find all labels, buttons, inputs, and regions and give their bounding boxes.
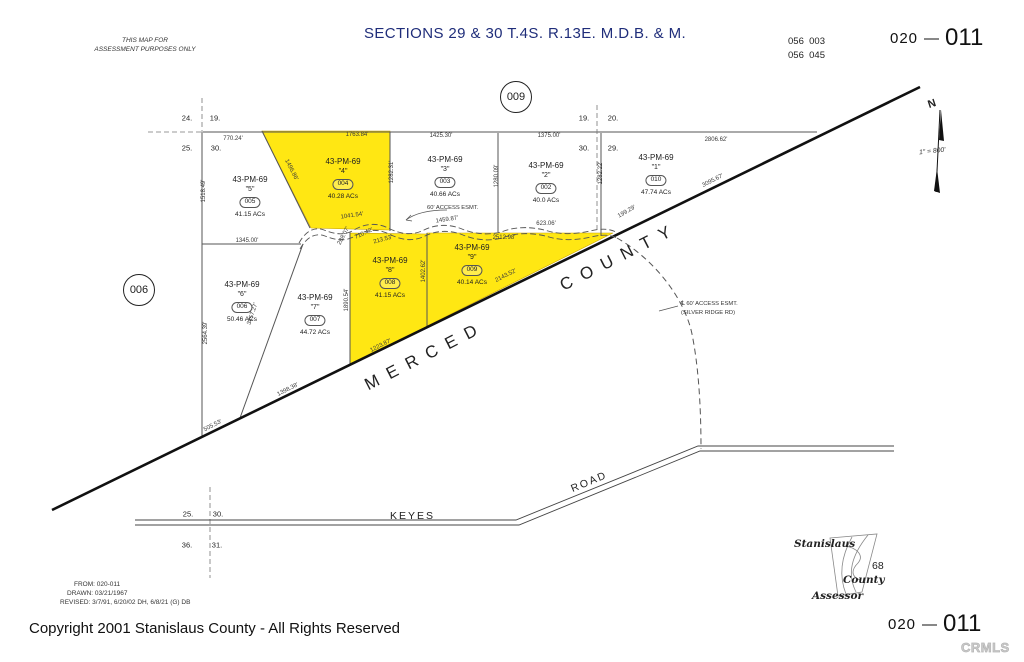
dimension-label: 623.06' <box>536 221 556 227</box>
parcel-acreage: 40.14 ACs <box>454 278 489 288</box>
parcel-name: "8" <box>372 266 407 276</box>
parcel-number-badge: 004 <box>333 179 354 190</box>
section-corner-label: 31. <box>212 541 222 550</box>
parcel-number-wrap: 002 <box>528 180 563 195</box>
parcel-map-reference: 43-PM-69 <box>224 280 259 290</box>
disclaimer-line1: THIS MAP FOR <box>60 36 230 45</box>
section-corner-label: 19. <box>579 114 589 123</box>
disclaimer-note: THIS MAP FOR ASSESSMENT PURPOSES ONLY <box>60 36 230 54</box>
dimension-label: 1518.49' <box>201 180 207 203</box>
keyes-road-label: KEYES <box>390 510 435 522</box>
parcel-number-wrap: 006 <box>224 299 259 314</box>
parcel-label: 43-PM-69"4"00440.28 ACs <box>325 157 360 201</box>
parcel-map-reference: 43-PM-69 <box>325 157 360 167</box>
parcel-label: 43-PM-69"3"00340.66 ACs <box>427 155 462 199</box>
parcel-map-reference: 43-PM-69 <box>638 153 673 163</box>
assessor-stamp-line1: Stanislaus <box>794 538 855 550</box>
parcel-number-badge: 003 <box>435 177 456 188</box>
parcel-name: "6" <box>224 290 259 300</box>
section-corner-label: 36. <box>182 541 192 550</box>
sheet-suffix: 011 <box>943 610 981 638</box>
dimension-label: 1282.31' <box>389 161 395 184</box>
map-title: SECTIONS 29 & 30 T.4S. R.13E. M.D.B. & M… <box>290 25 760 42</box>
parcel-map-reference: 43-PM-69 <box>528 161 563 171</box>
silver-ridge-line1: ℄ 60' ACCESS ESMT. <box>681 300 738 309</box>
parcel-label: 43-PM-69"7"00744.72 ACs <box>297 293 332 337</box>
parcel-name: "3" <box>427 165 462 175</box>
parcel-acreage: 44.72 ACs <box>297 328 332 338</box>
parcel-map-reference: 43-PM-69 <box>372 256 407 266</box>
parcel-name: "9" <box>454 253 489 263</box>
assessor-stamp-line3: Assessor <box>812 590 863 602</box>
section-corner-label: 30. <box>213 510 223 519</box>
sheet-number-bottom: 020 — 011 <box>888 610 981 638</box>
ref-code-2: 056 045 <box>788 50 825 61</box>
parcel-acreage: 40.0 ACs <box>528 196 563 206</box>
parcel-map-reference: 43-PM-69 <box>297 293 332 303</box>
drawn-note: DRAWN: 03/21/1967 <box>67 589 190 598</box>
ref-code-1: 056 003 <box>788 36 825 47</box>
copyright-note: Copyright 2001 Stanislaus County - All R… <box>29 620 400 637</box>
crmls-watermark: CRMLS <box>961 640 1010 655</box>
parcel-label: 43-PM-69"2"00240.0 ACs <box>528 161 563 205</box>
parcel-number-badge: 006 <box>232 302 253 313</box>
reference-codes: 056 003 056 045 <box>788 35 825 62</box>
parcel-map-reference: 43-PM-69 <box>232 175 267 185</box>
section-corner-label: 24. <box>182 114 192 123</box>
dimension-label: 1282.22' <box>598 162 604 185</box>
assessor-stamp-line2: County <box>843 574 885 586</box>
parcel-label: 43-PM-69"6"00650.46 ACs <box>224 280 259 324</box>
sheet-prefix: 020 <box>890 30 918 47</box>
parcel-number-badge: 008 <box>380 278 401 289</box>
sheet-prefix: 020 <box>888 616 916 633</box>
revision-block: FROM: 020-011 DRAWN: 03/21/1967 REVISED:… <box>60 580 190 607</box>
parcel-number-badge: 005 <box>240 197 261 208</box>
parcel-number-wrap: 009 <box>454 262 489 277</box>
dimension-label: 1425.30' <box>430 133 453 139</box>
dimension-label: 1402.62' <box>421 260 427 283</box>
assessor-stamp-number: 68 <box>872 560 884 572</box>
map-sheet-circle: 006 <box>123 274 155 306</box>
assessor-map-page: THIS MAP FOR ASSESSMENT PURPOSES ONLY SE… <box>0 0 1024 662</box>
silver-ridge-line2: (SILVER RIDGE RD) <box>681 309 738 318</box>
parcel-label: 43-PM-69"9"00940.14 ACs <box>454 243 489 287</box>
silver-ridge-easement-curve <box>617 238 701 449</box>
dimension-label: 2564.39' <box>203 322 209 345</box>
parcel-label: 43-PM-69"8"00841.15 ACs <box>372 256 407 300</box>
section-corner-label: 30. <box>211 144 221 153</box>
parcel-number-wrap: 003 <box>427 174 462 189</box>
sheet-number-top: 020 — 011 <box>890 24 983 52</box>
section-corner-label: 29. <box>608 144 618 153</box>
silver-ridge-label: ℄ 60' ACCESS ESMT. (SILVER RIDGE RD) <box>681 300 738 317</box>
section-corner-label: 30. <box>579 144 589 153</box>
dimension-label: 770.24' <box>223 136 243 142</box>
section-corner-label: 19. <box>210 114 220 123</box>
parcel-number-wrap: 008 <box>372 275 407 290</box>
revised-note: REVISED: 3/7/91, 6/20/02 DH, 6/8/21 (G) … <box>60 598 190 607</box>
parcel-name: "4" <box>325 167 360 177</box>
parcel-label: 43-PM-69"5"00541.15 ACs <box>232 175 267 219</box>
map-sheet-circle: 009 <box>500 81 532 113</box>
sheet-dash: — <box>924 30 939 47</box>
access-easement-label: 60' ACCESS ESMT. <box>427 205 478 211</box>
parcel-number-badge: 010 <box>646 175 667 186</box>
dimension-label: 1375.00' <box>538 133 561 139</box>
parcel-map-reference: 43-PM-69 <box>454 243 489 253</box>
dimension-label: 2806.62' <box>705 137 728 143</box>
dimension-label: 1763.84' <box>346 132 369 138</box>
disclaimer-line2: ASSESSMENT PURPOSES ONLY <box>60 45 230 54</box>
section-corner-label: 25. <box>183 510 193 519</box>
parcel-acreage: 40.28 ACs <box>325 192 360 202</box>
parcel-acreage: 41.15 ACs <box>232 210 267 220</box>
parcel-name: "1" <box>638 163 673 173</box>
parcel-acreage: 50.46 ACs <box>224 315 259 325</box>
parcel-acreage: 41.15 ACs <box>372 291 407 301</box>
from-note: FROM: 020-011 <box>74 580 190 589</box>
parcel-number-badge: 009 <box>462 265 483 276</box>
parcel-acreage: 40.66 ACs <box>427 190 462 200</box>
parcel-number-wrap: 007 <box>297 312 332 327</box>
parcel-number-badge: 002 <box>536 183 557 194</box>
parcel-label: 43-PM-69"1"01047.74 ACs <box>638 153 673 197</box>
parcel-number-badge: 007 <box>305 315 326 326</box>
parcel-number-wrap: 010 <box>638 172 673 187</box>
parcel-name: "2" <box>528 171 563 181</box>
parcel-name: "5" <box>232 185 267 195</box>
parcel-number-wrap: 005 <box>232 194 267 209</box>
dimension-label: 1345.00' <box>236 238 259 244</box>
section-corner-label: 25. <box>182 144 192 153</box>
parcel-number-wrap: 004 <box>325 176 360 191</box>
dimension-label: 2512.98' <box>493 235 516 241</box>
section-corner-label: 20. <box>608 114 618 123</box>
parcel-name: "7" <box>297 303 332 313</box>
sheet-dash: — <box>922 616 937 633</box>
sheet-suffix: 011 <box>945 24 983 52</box>
keyes-road-line <box>135 446 894 525</box>
dimension-label: 1280.09' <box>494 165 500 188</box>
parcel-map-reference: 43-PM-69 <box>427 155 462 165</box>
dimension-label: 1890.54' <box>344 289 350 312</box>
parcel-acreage: 47.74 ACs <box>638 188 673 198</box>
